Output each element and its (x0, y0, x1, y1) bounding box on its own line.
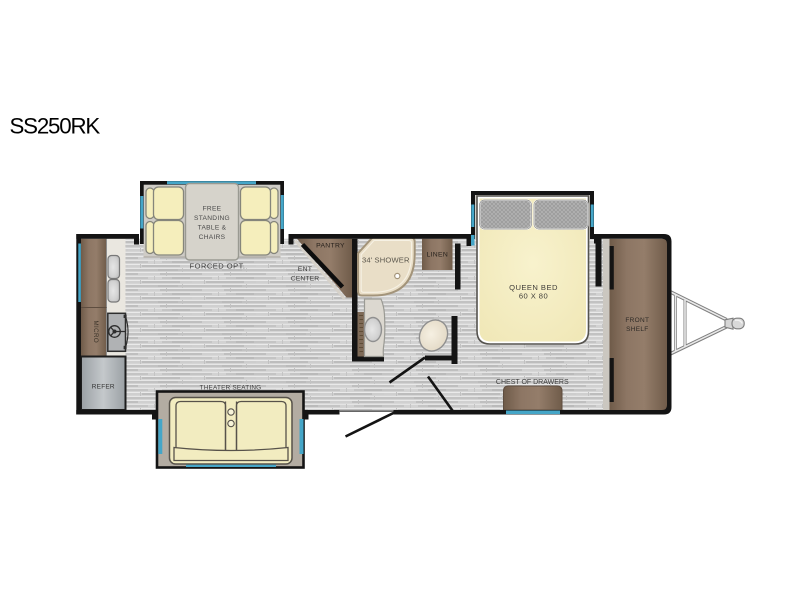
svg-text:60 X 80: 60 X 80 (519, 291, 548, 300)
svg-text:CENTER: CENTER (291, 276, 320, 283)
svg-text:TABLE &: TABLE & (198, 225, 227, 232)
svg-text:MICRO: MICRO (92, 320, 99, 343)
svg-text:PANTRY: PANTRY (316, 242, 345, 249)
svg-text:SS250RK: SS250RK (10, 113, 101, 138)
svg-text:REFER: REFER (92, 384, 115, 391)
svg-text:STANDING: STANDING (194, 215, 230, 222)
svg-text:THEATER SEATING: THEATER SEATING (200, 384, 262, 391)
svg-text:SHELF: SHELF (626, 326, 648, 333)
svg-text:34' SHOWER: 34' SHOWER (362, 256, 410, 265)
svg-text:CHAIRS: CHAIRS (199, 234, 226, 241)
svg-text:CHEST OF DRAWERS: CHEST OF DRAWERS (496, 379, 569, 386)
svg-text:FREE: FREE (203, 206, 222, 213)
svg-text:ENT: ENT (298, 266, 313, 273)
svg-text:FORCED OPT.: FORCED OPT. (190, 262, 246, 271)
svg-text:LINEN: LINEN (427, 251, 449, 258)
svg-text:FRONT: FRONT (625, 317, 649, 324)
